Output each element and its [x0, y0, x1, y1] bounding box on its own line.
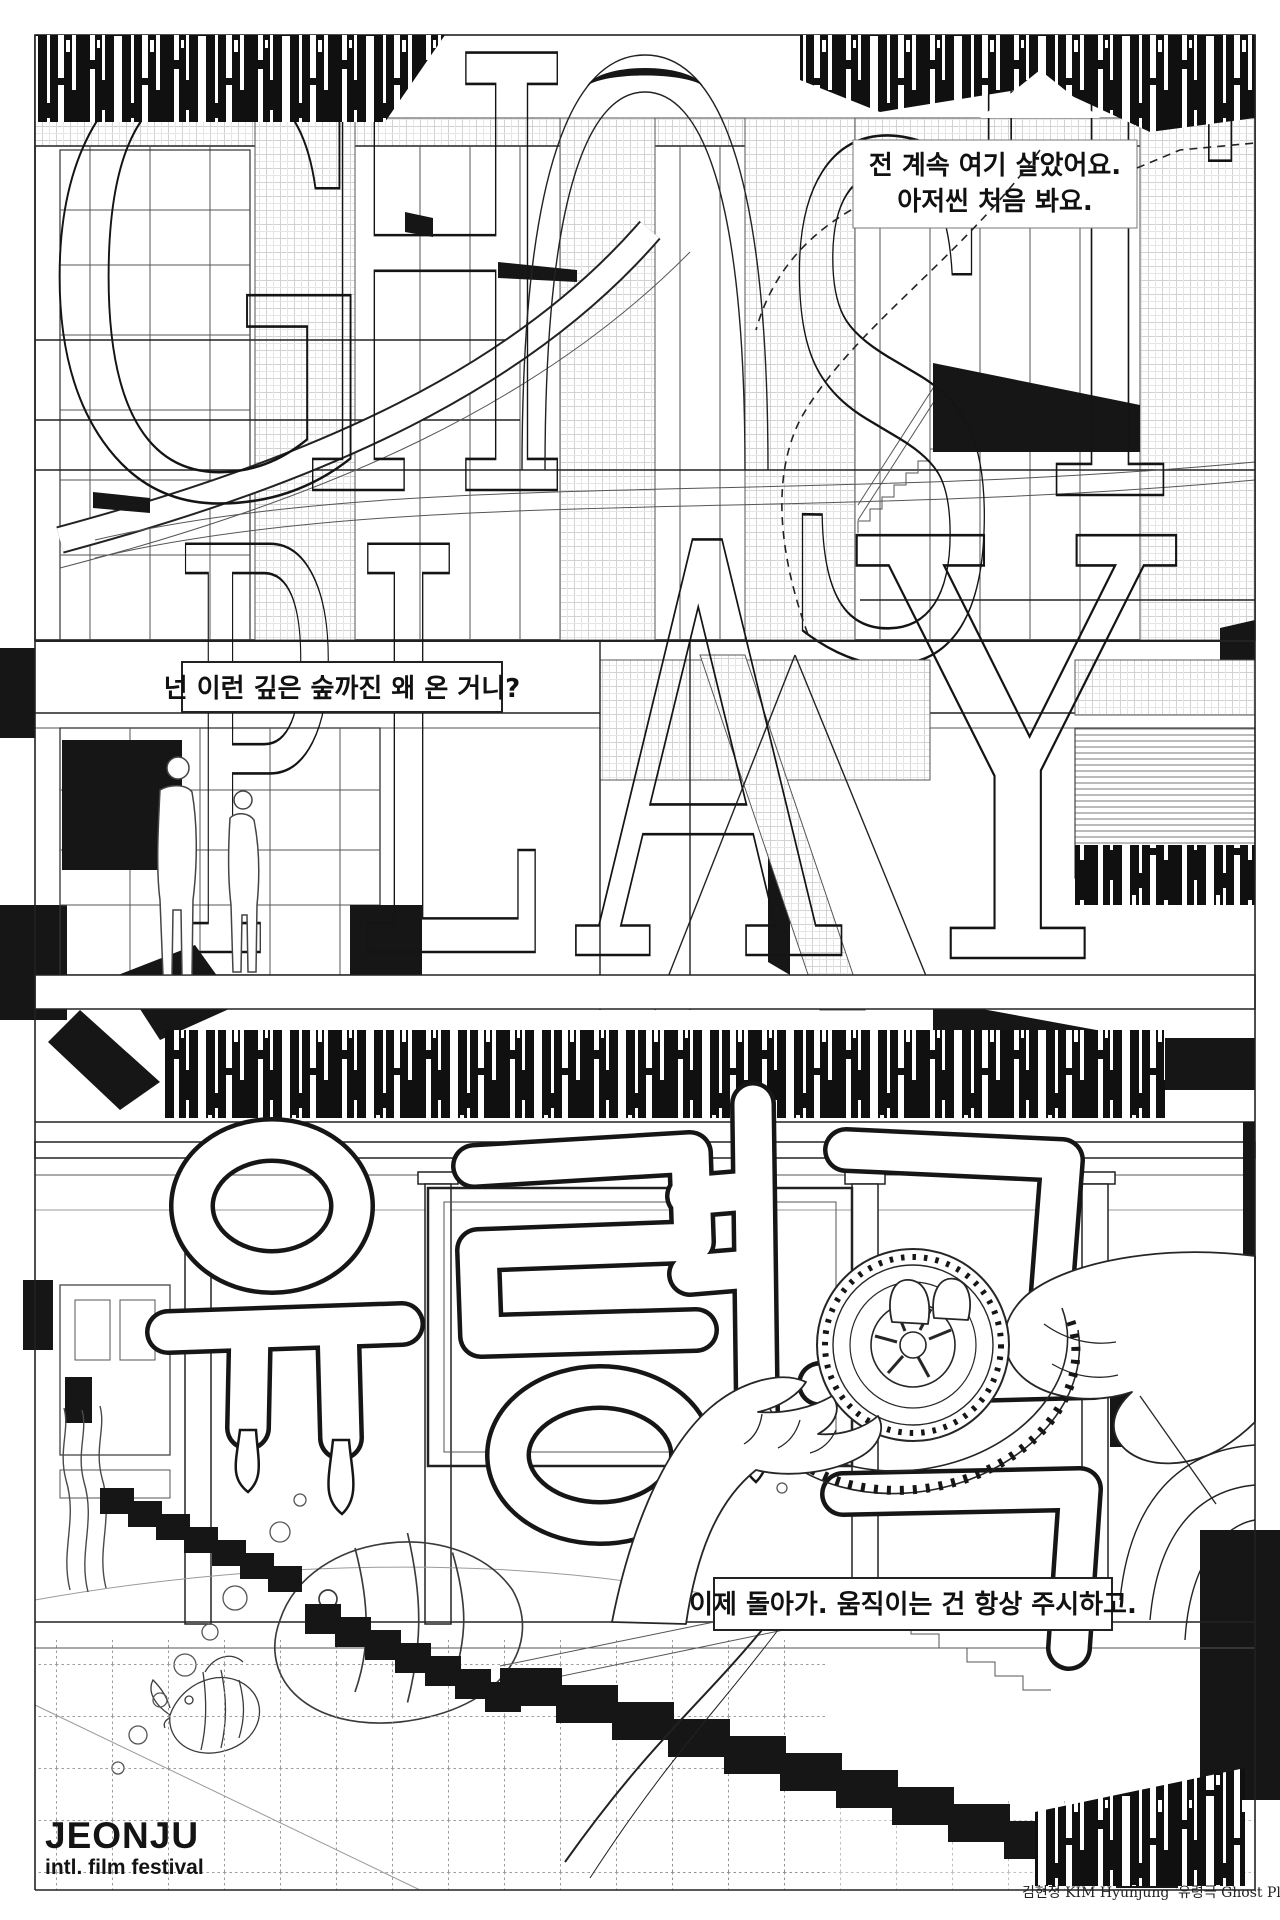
speech-text: 이제 돌아가. 움직이는 건 항상 주시하고.	[689, 1590, 1137, 1620]
credit-artist: 김현정 KIM Hyunjung	[1022, 1885, 1169, 1901]
hand-right	[1005, 1252, 1256, 1504]
speech-text: 전 계속 여기 살았어요.	[869, 151, 1121, 181]
speech-text: 넌 이런 깊은 숲까진 왜 온 거니?	[164, 674, 520, 704]
poster-canvas: G H S T P L A Y	[0, 0, 1280, 1920]
credits: 김현정 KIM Hyunjung 유령극 Ghost Play	[1022, 1885, 1280, 1901]
festival-logo-name: JEONJU	[45, 1815, 199, 1856]
festival-logo-subtitle: intl. film festival	[45, 1856, 204, 1879]
festival-logo: JEONJU intl. film festival	[45, 1815, 204, 1879]
credit-work: 유령극 Ghost Play	[1178, 1885, 1280, 1901]
walkway-beam	[35, 975, 1255, 1009]
speech-text: 아저씬 처음 봐요.	[897, 187, 1092, 217]
speech-bubble-middle-left: 넌 이런 깊은 숲까진 왜 온 거니?	[164, 662, 520, 712]
seaweed	[63, 1406, 106, 1592]
forest-band-top-left	[35, 35, 445, 122]
forest-band-middle	[165, 1030, 1165, 1118]
forest-band-bottom-right	[1035, 1768, 1245, 1886]
poster: G H S T P L A Y	[0, 0, 1280, 1920]
